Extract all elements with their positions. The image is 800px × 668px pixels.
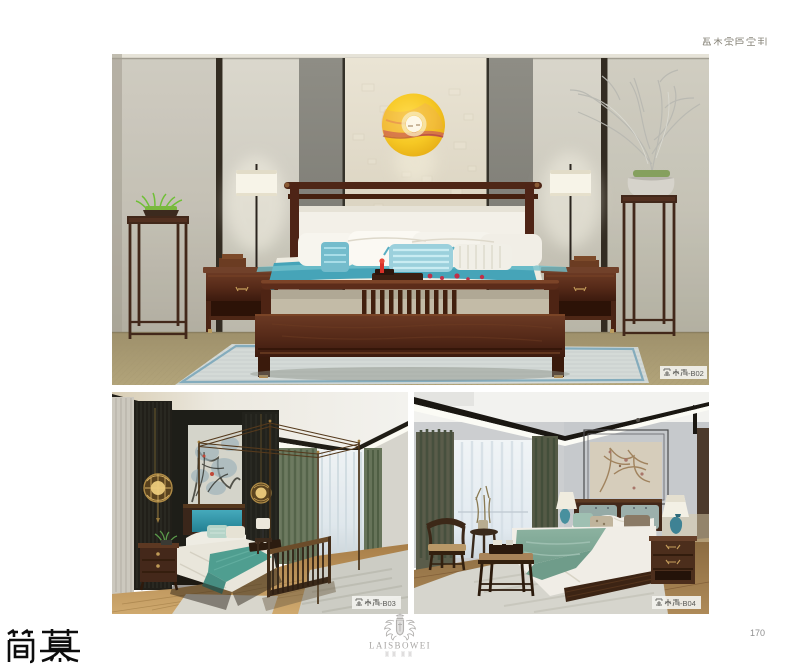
svg-text:-B04: -B04 (680, 599, 696, 608)
svg-text:LAISBOWEI: LAISBOWEI (369, 641, 431, 651)
svg-text:-B03: -B03 (380, 599, 396, 608)
svg-text:-B02: -B02 (688, 369, 704, 378)
